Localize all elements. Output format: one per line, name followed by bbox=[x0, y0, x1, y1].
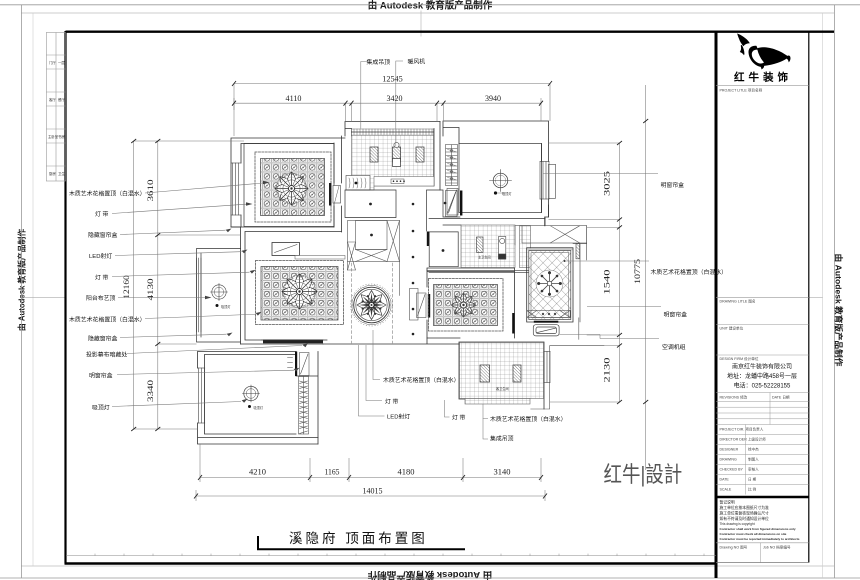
svg-text:由 Autodesk 教育版产品制作: 由 Autodesk 教育版产品制作 bbox=[368, 0, 493, 12]
svg-text:红牛|設計: 红牛|設計 bbox=[604, 462, 683, 487]
svg-text:DIRECTOR DER 上级设计师: DIRECTOR DER 上级设计师 bbox=[720, 437, 767, 442]
svg-text:REVISIONS 修改: REVISIONS 修改 bbox=[720, 395, 748, 400]
svg-text:施工单位应按本图纸尺寸为准: 施工单位应按本图纸尺寸为准 bbox=[720, 505, 770, 510]
svg-text:隐藏窗帘盒: 隐藏窗帘盒 bbox=[88, 335, 118, 343]
svg-text:3140: 3140 bbox=[494, 467, 512, 477]
svg-text:红牛装饰: 红牛装饰 bbox=[734, 71, 792, 84]
svg-text:DRAWING: DRAWING bbox=[720, 458, 737, 462]
svg-text:木质艺术花格置顶（白混水）: 木质艺术花格置顶（白混水） bbox=[383, 376, 460, 384]
svg-text:书房: 书房 bbox=[58, 134, 65, 139]
svg-text:3420: 3420 bbox=[387, 93, 404, 103]
svg-text:Drawing NO 图号: Drawing NO 图号 bbox=[720, 545, 748, 550]
svg-text:Contractor must be reported im: Contractor must be reported immediately … bbox=[720, 537, 800, 541]
svg-text:客卫生间: 客卫生间 bbox=[496, 386, 509, 391]
svg-text:审核人: 审核人 bbox=[748, 467, 759, 472]
svg-text:10775: 10775 bbox=[633, 259, 642, 284]
svg-text:Job NO 档案编号: Job NO 档案编号 bbox=[763, 545, 791, 550]
svg-text:12160: 12160 bbox=[122, 275, 131, 299]
svg-text:Contractor shall work from fig: Contractor shall work from figured dimen… bbox=[720, 527, 796, 531]
svg-text:隐藏窗帘盒: 隐藏窗帘盒 bbox=[88, 231, 118, 239]
svg-text:木质艺术花格置顶（白混水）: 木质艺术花格置顶（白混水） bbox=[651, 268, 728, 276]
svg-text:由 Autodesk 教育版产品制作: 由 Autodesk 教育版产品制作 bbox=[834, 254, 845, 367]
svg-text:1540: 1540 bbox=[603, 270, 612, 295]
svg-text:1165: 1165 bbox=[325, 467, 341, 477]
svg-text:比 例: 比 例 bbox=[748, 487, 757, 492]
svg-text:木质艺术花格置顶（白混水）: 木质艺术花格置顶（白混水） bbox=[69, 316, 146, 324]
svg-text:电话：025-52228155: 电话：025-52228155 bbox=[734, 382, 791, 390]
svg-text:厨房: 厨房 bbox=[49, 171, 56, 176]
svg-text:4130: 4130 bbox=[146, 279, 155, 301]
svg-text:主卫生间: 主卫生间 bbox=[478, 255, 491, 260]
svg-text:DRAWING LITLE 图名: DRAWING LITLE 图名 bbox=[720, 299, 756, 304]
svg-text:灯 带: 灯 带 bbox=[95, 274, 109, 282]
svg-text:暂记说明: 暂记说明 bbox=[720, 500, 735, 505]
svg-text:PROJECT LITLE 项目名称: PROJECT LITLE 项目名称 bbox=[720, 88, 763, 93]
svg-text:吸顶灯: 吸顶灯 bbox=[254, 405, 264, 410]
svg-text:明窗帘盒: 明窗帘盒 bbox=[89, 372, 113, 380]
svg-text:3340: 3340 bbox=[146, 380, 155, 402]
svg-text:卫生: 卫生 bbox=[58, 171, 65, 176]
svg-text:Contractor must check all dime: Contractor must check all dimensions on … bbox=[720, 532, 787, 536]
svg-text:投影幕布暗藏处: 投影幕布暗藏处 bbox=[86, 351, 127, 359]
svg-text:施工单位需复核现场确认尺寸: 施工单位需复核现场确认尺寸 bbox=[720, 511, 770, 516]
svg-text:SCALE: SCALE bbox=[720, 488, 732, 492]
svg-text:3025: 3025 bbox=[603, 171, 612, 196]
svg-text:木质艺术花格置顶（白混水）: 木质艺术花格置顶（白混水） bbox=[490, 415, 567, 423]
svg-text:4180: 4180 bbox=[398, 467, 416, 477]
svg-text:暖风机: 暖风机 bbox=[408, 57, 426, 65]
svg-text:如有不符请及时通知设计单位: 如有不符请及时通知设计单位 bbox=[720, 516, 770, 521]
svg-text:DATE: DATE bbox=[720, 478, 730, 482]
svg-text:LED射灯: LED射灯 bbox=[89, 252, 112, 260]
svg-text:明窗帘盒: 明窗帘盒 bbox=[664, 311, 688, 319]
svg-text:4210: 4210 bbox=[249, 467, 267, 477]
svg-text:2130: 2130 bbox=[603, 358, 612, 383]
svg-text:门厅: 门厅 bbox=[49, 60, 56, 65]
svg-text:餐厅: 餐厅 bbox=[58, 97, 65, 102]
svg-text:制图人: 制图人 bbox=[748, 457, 759, 462]
svg-text:DESIGN FIRM 设计单位: DESIGN FIRM 设计单位 bbox=[720, 356, 759, 361]
svg-text:UNIT 建设单位: UNIT 建设单位 bbox=[720, 326, 744, 331]
svg-text:木质艺术花格置顶（白混水）: 木质艺术花格置顶（白混水） bbox=[69, 190, 146, 198]
svg-text:CHECKED BY: CHECKED BY bbox=[720, 468, 744, 472]
svg-text:吸顶灯: 吸顶灯 bbox=[92, 404, 110, 412]
svg-text:阳台布艺顶: 阳台布艺顶 bbox=[86, 294, 116, 302]
svg-text:This drawing is copyright: This drawing is copyright bbox=[720, 522, 755, 526]
svg-text:徐中杰: 徐中杰 bbox=[748, 447, 759, 452]
svg-text:14015: 14015 bbox=[363, 486, 384, 496]
svg-text:灯 带: 灯 带 bbox=[452, 414, 466, 422]
svg-text:PROJECT DIR. 项目负责人: PROJECT DIR. 项目负责人 bbox=[720, 427, 764, 432]
svg-text:LED射灯: LED射灯 bbox=[387, 413, 410, 421]
svg-text:集成吊顶: 集成吊顶 bbox=[367, 58, 391, 66]
svg-text:集成吊顶: 集成吊顶 bbox=[490, 435, 514, 443]
svg-text:溪隐府 顶面布置图: 溪隐府 顶面布置图 bbox=[289, 531, 428, 546]
svg-text:明窗帘盒: 明窗帘盒 bbox=[661, 181, 685, 189]
svg-text:DATE 日期: DATE 日期 bbox=[772, 395, 790, 400]
svg-text:3940: 3940 bbox=[485, 93, 502, 103]
svg-text:吸顶灯: 吸顶灯 bbox=[502, 191, 512, 196]
svg-text:4110: 4110 bbox=[286, 93, 303, 103]
svg-text:灯 带: 灯 带 bbox=[385, 398, 399, 406]
svg-text:3610: 3610 bbox=[146, 180, 155, 202]
svg-text:灯 带: 灯 带 bbox=[95, 210, 109, 218]
svg-text:日 期: 日 期 bbox=[748, 477, 757, 482]
svg-text:客厅: 客厅 bbox=[49, 97, 56, 102]
svg-text:吸顶灯: 吸顶灯 bbox=[221, 304, 231, 309]
svg-text:DESIGNER: DESIGNER bbox=[720, 448, 739, 452]
svg-text:一层: 一层 bbox=[58, 60, 65, 65]
svg-text:空调机组: 空调机组 bbox=[662, 343, 686, 351]
svg-text:地址：龙蟠中路458号一层: 地址：龙蟠中路458号一层 bbox=[727, 372, 797, 380]
svg-text:12545: 12545 bbox=[382, 74, 403, 84]
svg-text:南京红牛装饰有限公司: 南京红牛装饰有限公司 bbox=[732, 363, 792, 371]
